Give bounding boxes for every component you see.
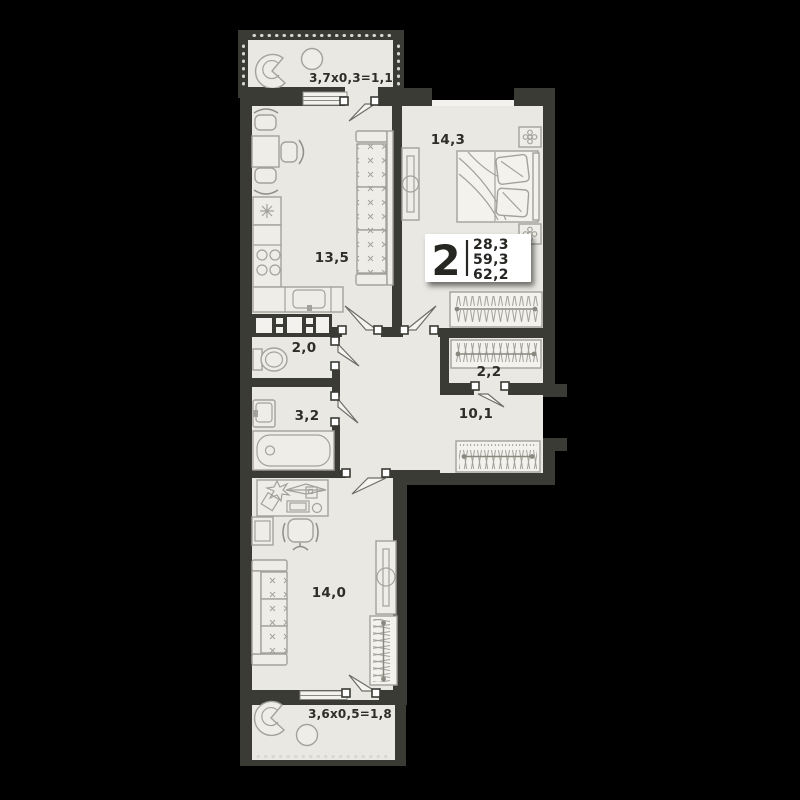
door-hinge-icon <box>471 382 479 390</box>
balcony-table-icon <box>302 49 323 70</box>
shaft-box-icon <box>276 327 283 333</box>
bathtub <box>253 431 334 470</box>
sofa-cushion-pattern <box>357 187 386 230</box>
room-label-kitchen-living: 13,5 <box>315 250 350 266</box>
window-recess <box>432 88 514 100</box>
room-label-bathroom: 3,2 <box>295 408 320 424</box>
utility-shaft <box>252 314 332 337</box>
door-hinge-icon <box>331 392 339 400</box>
pillow-icon <box>496 154 530 185</box>
double-bed <box>457 151 539 222</box>
door-hinge-icon <box>331 337 339 345</box>
door-hinge-icon <box>374 326 382 334</box>
room-label-bedroom: 14,3 <box>431 132 466 148</box>
shaft-appliance-icon <box>316 317 329 333</box>
bedroom-mirror <box>402 148 419 220</box>
bed-headboard <box>533 153 539 220</box>
balcony-bottom: 3,6x0,5=1,8 <box>240 700 406 766</box>
room-label-hallway: 10,1 <box>459 406 494 422</box>
door-hinge-icon <box>342 689 350 697</box>
hallway-wardrobe <box>456 441 540 472</box>
shaft-appliance-icon <box>256 318 272 333</box>
room-label-room: 14,0 <box>312 585 347 601</box>
room-wardrobe <box>370 616 397 685</box>
shaft-box-icon <box>306 327 313 333</box>
apartment-info-card: 2 28,3 59,3 62,2 <box>425 234 531 285</box>
chair-icon <box>255 168 276 183</box>
shaft-appliance-icon <box>287 317 302 333</box>
sofa-backrest <box>252 571 261 654</box>
faucet-icon <box>253 410 258 417</box>
faucet-icon <box>307 305 312 311</box>
room-sofa <box>252 560 287 665</box>
sofa-armrest <box>356 131 387 142</box>
bedroom-window <box>432 88 514 106</box>
door-hinge-icon <box>430 326 438 334</box>
area-apartment: 59,3 <box>473 252 509 268</box>
sofa-cushion-pattern <box>357 230 386 273</box>
hallway-floor <box>340 337 440 470</box>
door-hinge-icon <box>371 97 379 105</box>
bedroom-wardrobe <box>450 292 542 327</box>
sofa-armrest <box>252 654 287 665</box>
kitchen-sofa <box>356 131 393 285</box>
sofa-cushion-pattern <box>357 144 386 187</box>
door-hinge-icon <box>331 418 339 426</box>
office-chair-icon <box>288 519 313 542</box>
snowflake-icon <box>260 204 274 218</box>
pillow-icon <box>496 188 529 217</box>
area-living: 28,3 <box>473 237 509 253</box>
floor-plan-canvas: 3,7x0,3=1,1 <box>0 0 800 800</box>
room-label-closet: 2,2 <box>477 364 502 380</box>
shaft-box-icon <box>276 318 283 324</box>
shaft-box-icon <box>306 318 313 324</box>
door-hinge-icon <box>342 469 350 477</box>
room-label-wc: 2,0 <box>292 340 317 356</box>
wc <box>253 348 287 371</box>
sofa-armrest <box>356 274 387 285</box>
desk <box>257 480 328 516</box>
fridge <box>253 197 281 225</box>
balcony-top: 3,7x0,3=1,1 <box>238 30 404 98</box>
balcony-bottom-area-label: 3,6x0,5=1,8 <box>308 707 392 721</box>
mirror-icon <box>376 541 396 614</box>
rooms-count: 2 <box>431 236 460 285</box>
door-hinge-icon <box>382 469 390 477</box>
table-icon <box>252 136 279 167</box>
floor-plan: 3,7x0,3=1,1 <box>0 0 800 800</box>
room-door-opening <box>346 470 387 478</box>
entrance-jamb-bottom <box>543 438 567 451</box>
door-hinge-icon <box>372 689 380 697</box>
balcony-top-area-label: 3,7x0,3=1,1 <box>309 71 393 85</box>
balcony-table-icon <box>297 725 318 746</box>
door-hinge-icon <box>340 97 348 105</box>
area-total: 62,2 <box>473 267 509 283</box>
chair-icon <box>281 142 297 162</box>
door-hinge-icon <box>338 326 346 334</box>
door-hinge-icon <box>331 362 339 370</box>
entrance-gap <box>543 396 557 438</box>
mirror-icon <box>402 148 419 220</box>
room-mirror <box>376 541 396 614</box>
entrance-jamb-top <box>543 384 567 397</box>
chair-icon <box>255 115 276 130</box>
desk-cabinet <box>252 517 273 545</box>
door-hinge-icon <box>400 326 408 334</box>
nightstand-plant-top <box>519 127 541 147</box>
window-sill <box>432 100 514 106</box>
sofa-backrest <box>387 131 393 285</box>
door-hinge-icon <box>501 382 509 390</box>
sofa-armrest <box>252 560 287 571</box>
